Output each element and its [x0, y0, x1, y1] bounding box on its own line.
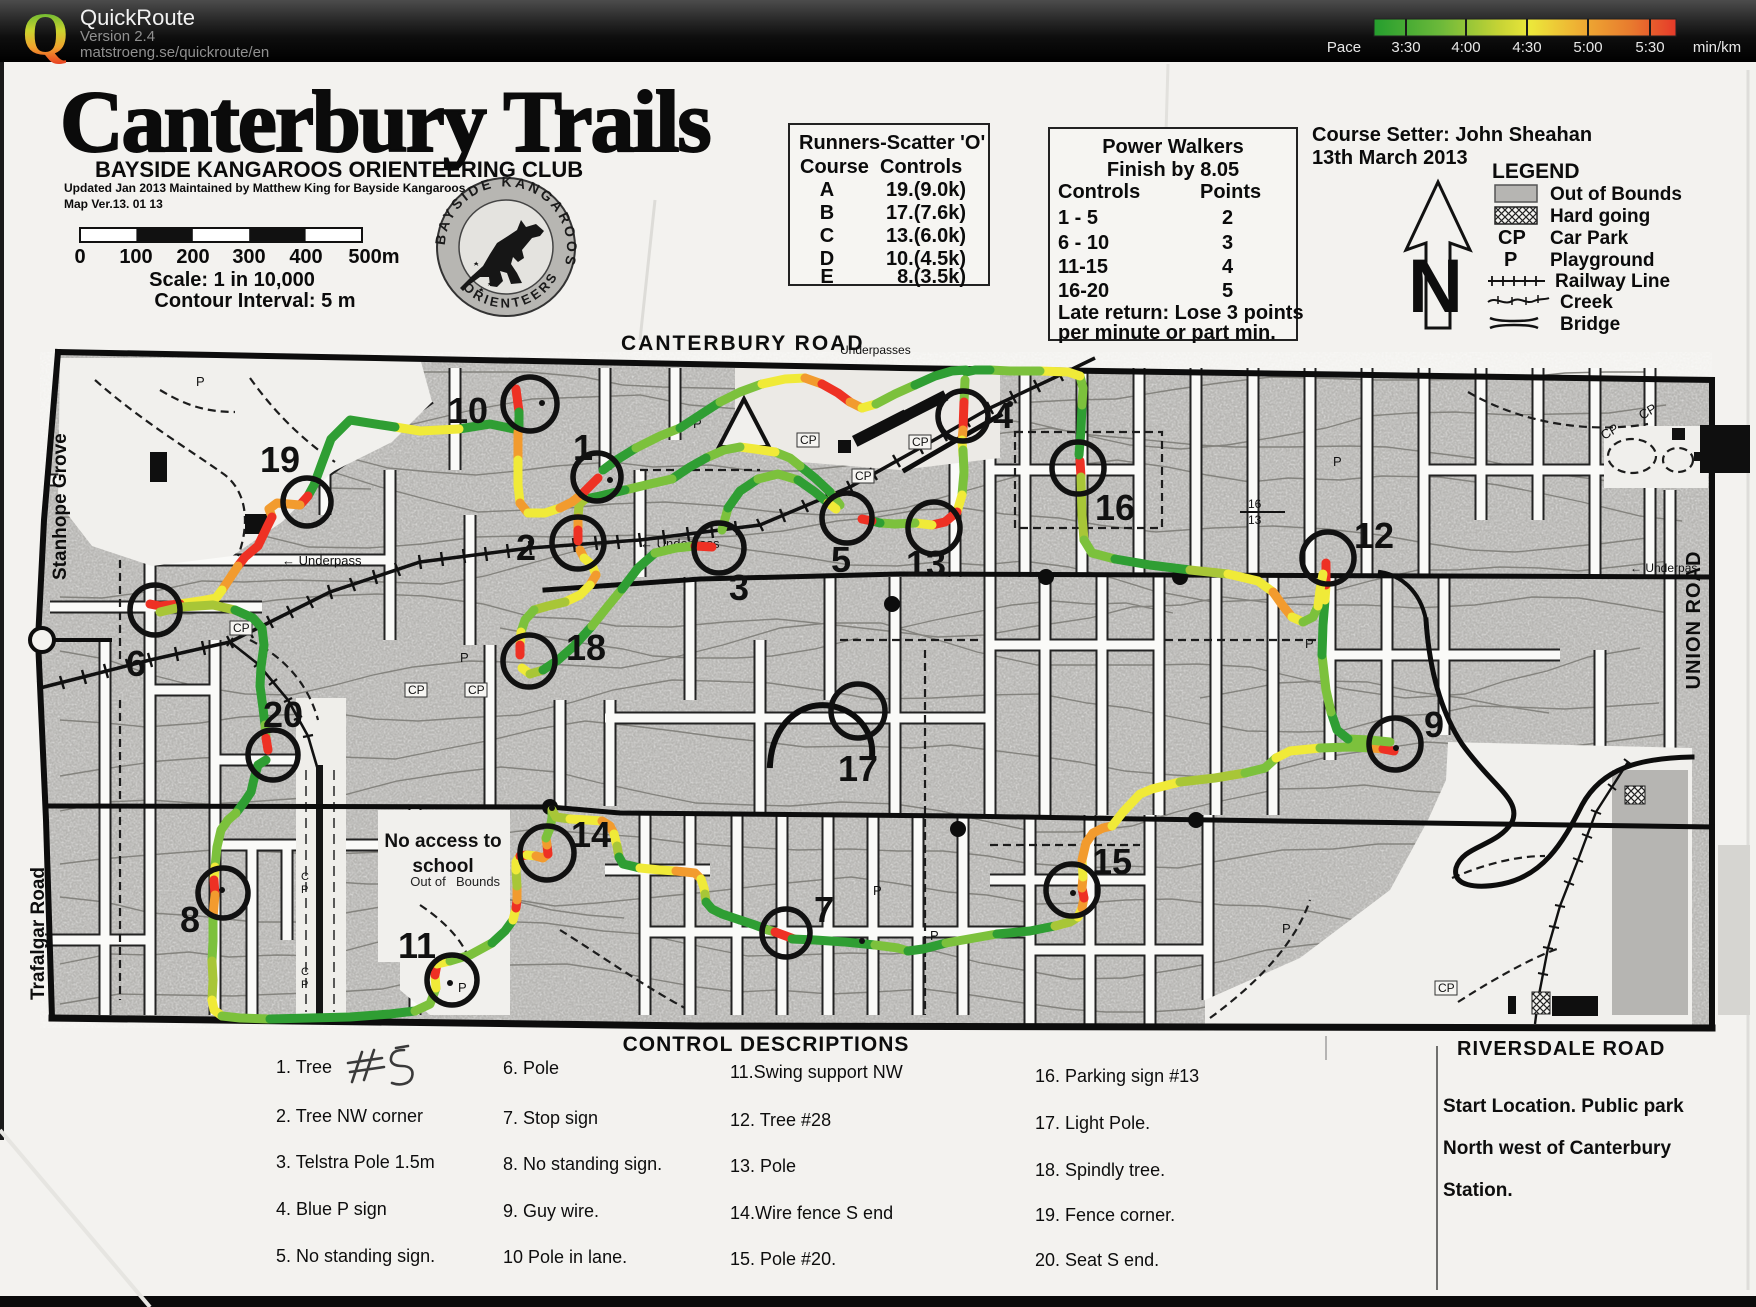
svg-text:6 - 10: 6 - 10	[1058, 232, 1109, 254]
svg-text:Start Location. Public park: Start Location. Public park	[1443, 1096, 1684, 1117]
svg-text:CONTROL DESCRIPTIONS: CONTROL DESCRIPTIONS	[623, 1033, 910, 1056]
svg-text:18. Spindly tree.: 18. Spindly tree.	[1035, 1160, 1165, 1180]
svg-text:2: 2	[1222, 207, 1233, 229]
svg-text:CP: CP	[468, 683, 485, 697]
svg-text:5: 5	[1222, 280, 1233, 302]
svg-text:4:30: 4:30	[1512, 39, 1541, 56]
svg-text:CP: CP	[1498, 227, 1526, 249]
svg-text:Late return: Lose 3 points: Late return: Lose 3 points	[1058, 302, 1304, 324]
svg-text:RIVERSDALE ROAD: RIVERSDALE ROAD	[1457, 1038, 1665, 1060]
svg-text:Pace: Pace	[1327, 39, 1361, 56]
svg-text:CP: CP	[855, 469, 872, 483]
svg-text:5. No standing sign.: 5. No standing sign.	[276, 1246, 435, 1266]
svg-text:10: 10	[448, 390, 488, 431]
svg-text:Out of: Out of	[410, 874, 446, 889]
svg-text:19. Fence corner.: 19. Fence corner.	[1035, 1205, 1175, 1225]
svg-text:Out of Bounds: Out of Bounds	[1550, 184, 1682, 205]
svg-text:7. Stop sign: 7. Stop sign	[503, 1108, 598, 1128]
svg-text:6: 6	[126, 643, 146, 684]
svg-text:5: 5	[831, 539, 851, 580]
svg-text:Q: Q	[22, 1, 69, 67]
svg-text:CP: CP	[408, 683, 425, 697]
svg-text:Controls: Controls	[880, 156, 962, 178]
svg-text:9: 9	[1424, 704, 1444, 745]
svg-text:Trafalgar Road: Trafalgar Road	[28, 867, 49, 1000]
svg-text:5:00: 5:00	[1573, 39, 1602, 56]
svg-text:per minute or part min.: per minute or part min.	[1058, 322, 1276, 344]
svg-text:400: 400	[289, 246, 322, 268]
svg-text:8.(3.5k): 8.(3.5k)	[897, 266, 966, 288]
svg-text:13: 13	[906, 543, 946, 584]
svg-text:North west of Canterbury: North west of Canterbury	[1443, 1138, 1671, 1159]
svg-text:P: P	[460, 650, 469, 665]
svg-text:CP: CP	[912, 435, 929, 449]
svg-text:CP: CP	[1438, 981, 1455, 995]
svg-text:Railway Line: Railway Line	[1555, 271, 1670, 292]
svg-text:CP: CP	[800, 433, 817, 447]
svg-text:2. Tree NW corner: 2. Tree NW corner	[276, 1106, 423, 1126]
svg-text:Controls: Controls	[1058, 181, 1140, 203]
svg-text:P: P	[1333, 454, 1342, 469]
svg-text:4: 4	[1222, 256, 1234, 278]
svg-text:13. Pole: 13. Pole	[730, 1156, 796, 1176]
svg-text:Hard going: Hard going	[1550, 206, 1650, 227]
svg-text:3: 3	[1222, 232, 1233, 254]
svg-text:4. Blue P sign: 4. Blue P sign	[276, 1199, 387, 1219]
svg-text:14.Wire fence S end: 14.Wire fence S end	[730, 1203, 893, 1223]
svg-text:14: 14	[571, 814, 611, 855]
svg-text:7: 7	[814, 889, 834, 930]
svg-text:17.(7.6k): 17.(7.6k)	[886, 202, 966, 224]
svg-text:200: 200	[176, 246, 209, 268]
svg-text:3:30: 3:30	[1391, 39, 1420, 56]
svg-text:Stanhope Grove: Stanhope Grove	[50, 433, 71, 580]
svg-text:Car Park: Car Park	[1550, 228, 1629, 249]
svg-text:Scale: 1 in 10,000: Scale: 1 in 10,000	[149, 269, 315, 291]
svg-text:11-15: 11-15	[1058, 256, 1108, 278]
svg-text:Version 2.4: Version 2.4	[80, 28, 155, 45]
svg-text:2: 2	[516, 527, 536, 568]
svg-text:16. Parking sign #13: 16. Parking sign #13	[1035, 1066, 1199, 1086]
svg-text:500m: 500m	[348, 246, 399, 268]
svg-text:18: 18	[566, 627, 606, 668]
svg-text:16: 16	[1095, 487, 1135, 528]
svg-text:min/km: min/km	[1693, 39, 1741, 56]
svg-text:Runners-Scatter 'O': Runners-Scatter 'O'	[799, 132, 985, 154]
svg-text:16-20: 16-20	[1058, 280, 1109, 302]
svg-text:← Underpass: ← Underpass	[282, 553, 362, 568]
svg-text:13th March 2013: 13th March 2013	[1312, 147, 1468, 169]
svg-text:Map Ver.13. 01 13: Map Ver.13. 01 13	[64, 197, 163, 211]
svg-text:13: 13	[1248, 513, 1262, 527]
svg-text:A: A	[820, 179, 834, 201]
svg-text:11.Swing support NW: 11.Swing support NW	[730, 1062, 903, 1082]
svg-text:Station.: Station.	[1443, 1180, 1513, 1201]
svg-text:P: P	[1504, 249, 1517, 271]
svg-text:15: 15	[1092, 841, 1132, 882]
svg-text:4:00: 4:00	[1451, 39, 1480, 56]
svg-text:12. Tree #28: 12. Tree #28	[730, 1110, 831, 1130]
svg-text:P: P	[873, 883, 882, 898]
svg-text:3: 3	[729, 567, 749, 608]
svg-text:QuickRoute: QuickRoute	[80, 5, 195, 30]
svg-text:Bounds: Bounds	[456, 874, 501, 889]
svg-text:C: C	[301, 871, 309, 883]
svg-text:20. Seat S end.: 20. Seat S end.	[1035, 1250, 1159, 1270]
svg-text:Points: Points	[1200, 181, 1261, 203]
svg-text:11: 11	[398, 925, 436, 966]
svg-text:No access to: No access to	[384, 831, 501, 852]
svg-text:6. Pole: 6. Pole	[503, 1058, 559, 1078]
svg-text:P: P	[196, 374, 205, 389]
svg-text:Updated Jan 2013 Maintained by: Updated Jan 2013 Maintained by Matthew K…	[64, 181, 466, 195]
svg-text:20: 20	[263, 694, 303, 735]
svg-text:300: 300	[232, 246, 265, 268]
svg-text:C: C	[820, 225, 834, 247]
svg-text:CP: CP	[233, 621, 250, 635]
svg-text:3. Telstra Pole 1.5m: 3. Telstra Pole 1.5m	[276, 1152, 435, 1172]
svg-text:Contour Interval: 5 m: Contour Interval: 5 m	[154, 290, 355, 312]
svg-text:Playground: Playground	[1550, 250, 1655, 271]
svg-text:1. Tree: 1. Tree	[276, 1057, 332, 1077]
svg-text:8. No standing sign.: 8. No standing sign.	[503, 1154, 662, 1174]
svg-text:1 - 5: 1 - 5	[1058, 207, 1098, 229]
svg-text:12: 12	[1354, 515, 1394, 556]
svg-text:Course: Course	[800, 156, 869, 178]
svg-text:17. Light Pole.: 17. Light Pole.	[1035, 1113, 1150, 1133]
svg-text:P: P	[301, 884, 308, 896]
svg-text:100: 100	[119, 246, 152, 268]
svg-text:B: B	[820, 202, 834, 224]
svg-text:9. Guy wire.: 9. Guy wire.	[503, 1201, 599, 1221]
svg-text:19.(9.0k): 19.(9.0k)	[886, 179, 966, 201]
svg-text:matstroeng.se/quickroute/en: matstroeng.se/quickroute/en	[80, 44, 269, 61]
svg-text:CANTERBURY ROAD: CANTERBURY ROAD	[621, 332, 865, 355]
svg-text:Creek: Creek	[1560, 292, 1613, 313]
svg-text:Finish by 8.05: Finish by 8.05	[1107, 159, 1239, 181]
svg-text:P: P	[458, 980, 467, 995]
svg-text:P: P	[301, 979, 308, 991]
svg-text:10 Pole in lane.: 10 Pole in lane.	[503, 1247, 627, 1267]
svg-text:Bridge: Bridge	[1560, 314, 1620, 335]
svg-text:19: 19	[260, 439, 300, 480]
svg-text:0: 0	[74, 246, 85, 268]
svg-text:N: N	[1408, 244, 1463, 329]
svg-text:13.(6.0k): 13.(6.0k)	[886, 225, 966, 247]
svg-text:1: 1	[573, 427, 593, 468]
svg-text:E: E	[820, 266, 833, 288]
svg-text:C: C	[301, 966, 309, 978]
svg-text:P: P	[1282, 921, 1291, 936]
svg-text:16: 16	[1248, 497, 1262, 511]
svg-text:P: P	[1305, 636, 1314, 651]
svg-text:8: 8	[180, 899, 200, 940]
svg-text:5:30: 5:30	[1635, 39, 1664, 56]
svg-text:17: 17	[838, 748, 878, 789]
svg-text:Course Setter: John Sheahan: Course Setter: John Sheahan	[1312, 124, 1592, 146]
svg-text:15. Pole #20.: 15. Pole #20.	[730, 1249, 836, 1269]
svg-text:UNION ROAD: UNION ROAD	[1683, 551, 1705, 690]
svg-text:LEGEND: LEGEND	[1492, 160, 1580, 183]
svg-text:Power Walkers: Power Walkers	[1102, 136, 1244, 158]
